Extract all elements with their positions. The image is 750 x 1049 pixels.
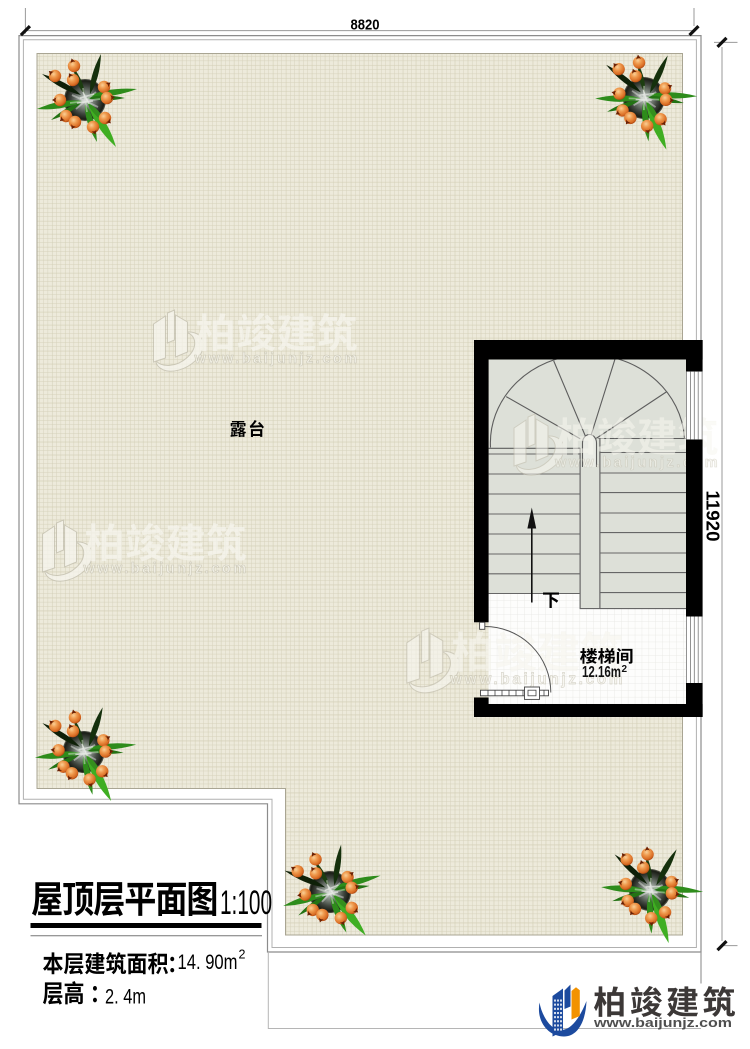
svg-text:12.16m: 12.16m [582, 664, 621, 681]
svg-text:www.baijunjz.com: www.baijunjz.com [83, 561, 249, 577]
svg-text:2: 2 [622, 664, 628, 675]
svg-text:1:100: 1:100 [220, 884, 272, 922]
svg-text:11920: 11920 [703, 491, 724, 542]
svg-text:2. 4m: 2. 4m [105, 985, 146, 1009]
svg-text:8820: 8820 [351, 17, 380, 34]
svg-text:14. 90m: 14. 90m [178, 950, 238, 974]
svg-text:www.baijunjz.com: www.baijunjz.com [194, 351, 360, 367]
svg-text:2: 2 [239, 948, 246, 962]
svg-text:www.baijunjz.com: www.baijunjz.com [593, 1015, 732, 1030]
